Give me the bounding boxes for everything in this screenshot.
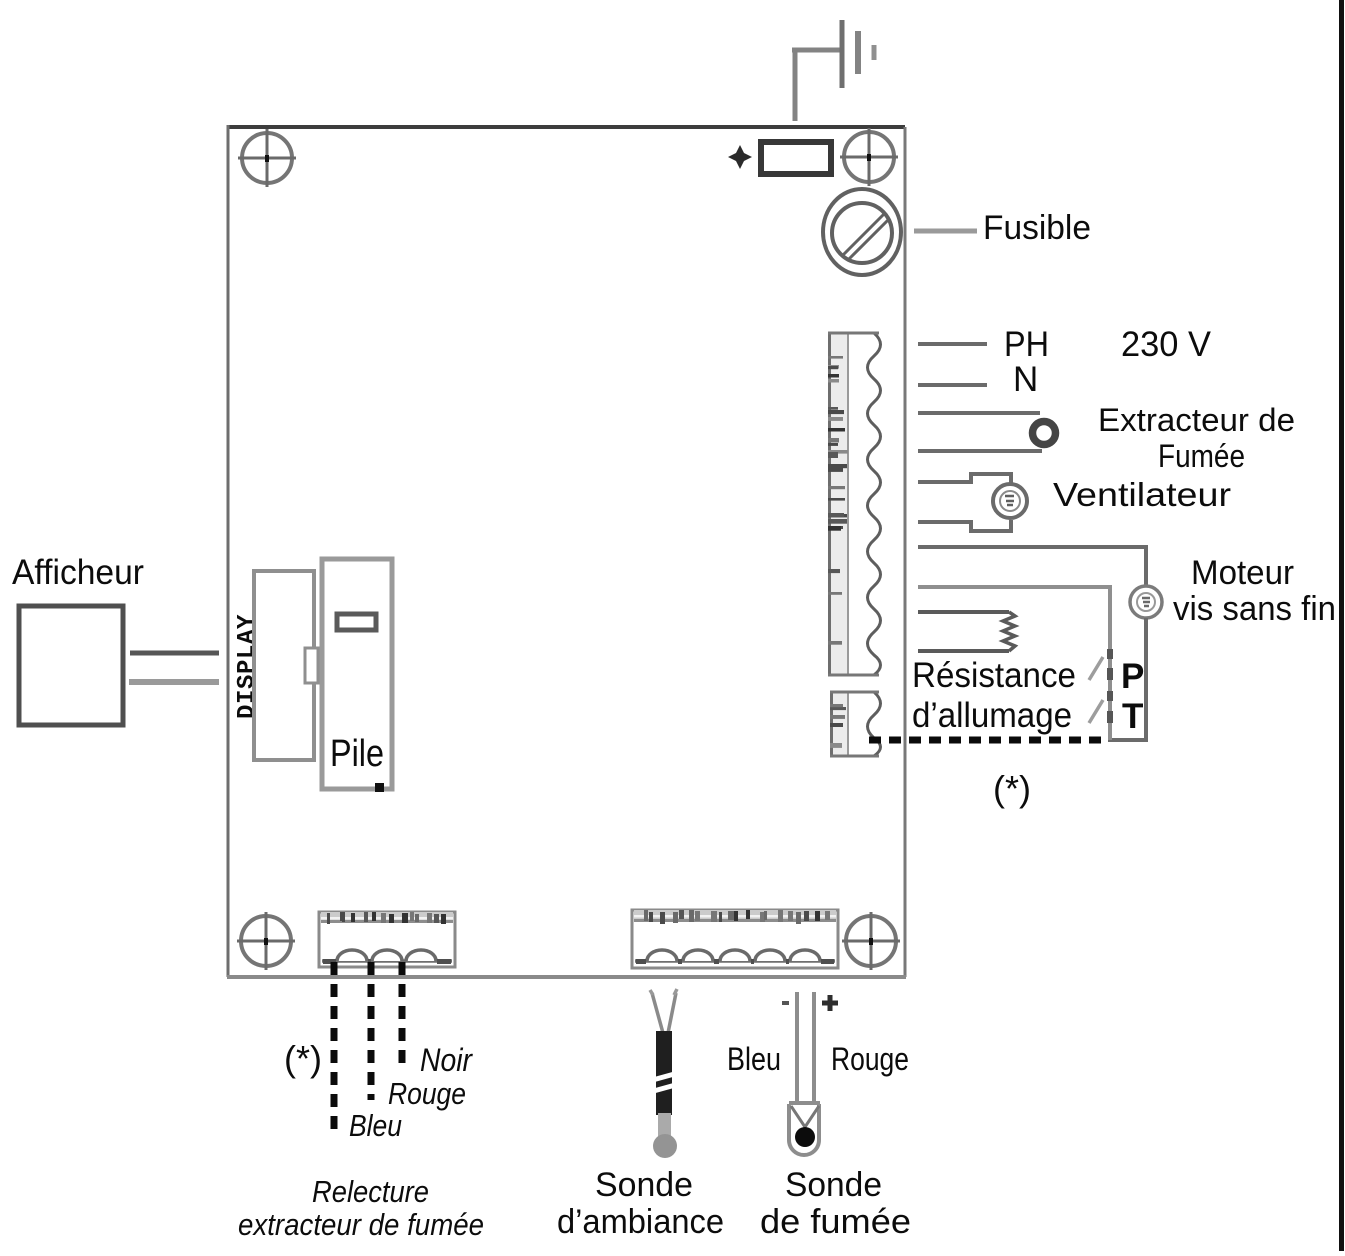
svg-text:Bleu: Bleu	[727, 1041, 781, 1077]
svg-text:de fumée: de fumée	[760, 1203, 911, 1241]
svg-text:Sonde: Sonde	[785, 1166, 882, 1204]
svg-text:N: N	[1013, 360, 1038, 399]
svg-text:PH: PH	[1004, 325, 1049, 364]
svg-text:T: T	[1122, 697, 1143, 736]
svg-text:Moteur: Moteur	[1191, 554, 1294, 592]
svg-text:d’ambiance: d’ambiance	[557, 1203, 724, 1241]
svg-text:Ventilateur: Ventilateur	[1053, 476, 1231, 513]
svg-text:Extracteur de: Extracteur de	[1098, 402, 1295, 438]
svg-text:(*): (*)	[284, 1038, 322, 1079]
svg-text:Fumée: Fumée	[1158, 438, 1245, 474]
svg-text:(*): (*)	[993, 768, 1031, 809]
svg-text:Rouge: Rouge	[831, 1041, 909, 1077]
svg-text:vis sans fin: vis sans fin	[1173, 590, 1336, 628]
svg-text:Relecture: Relecture	[312, 1174, 429, 1209]
svg-text:Noir: Noir	[420, 1042, 473, 1078]
svg-text:230 V: 230 V	[1121, 325, 1212, 364]
svg-text:Pile: Pile	[330, 733, 384, 775]
svg-text:Fusible: Fusible	[983, 209, 1091, 247]
svg-text:d’allumage: d’allumage	[912, 696, 1072, 735]
svg-text:P: P	[1121, 657, 1144, 696]
svg-text:Sonde: Sonde	[595, 1166, 693, 1204]
svg-text:Afficheur: Afficheur	[12, 553, 144, 592]
svg-text:Rouge: Rouge	[388, 1076, 466, 1111]
svg-text:extracteur de fumée: extracteur de fumée	[238, 1207, 484, 1242]
svg-text:Bleu: Bleu	[349, 1108, 402, 1143]
svg-text:Résistance: Résistance	[912, 656, 1076, 695]
